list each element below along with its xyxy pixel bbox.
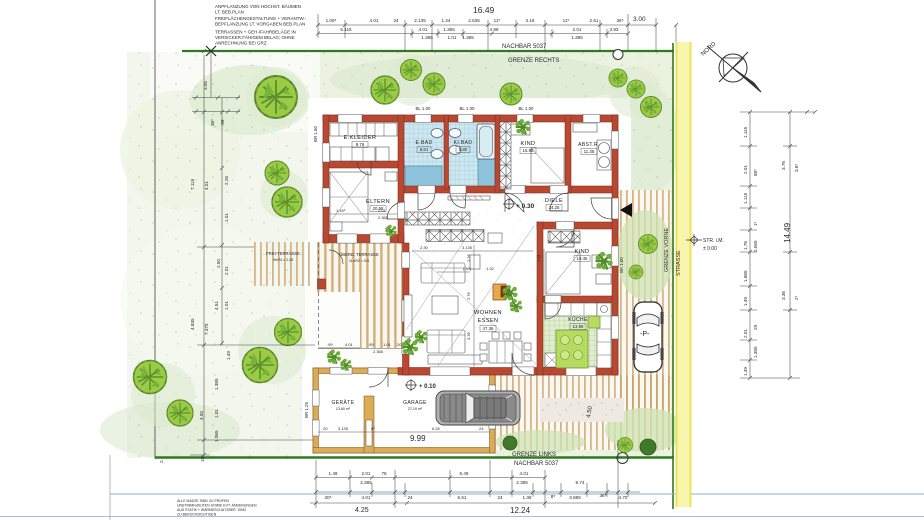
svg-text:3.135: 3.135 — [462, 245, 473, 250]
svg-text:9.99: 9.99 — [410, 434, 426, 443]
svg-text:13.95: 13.95 — [573, 324, 585, 329]
svg-text:2.76: 2.76 — [466, 291, 471, 300]
svg-text:1.32: 1.32 — [486, 266, 495, 271]
svg-text:3.93: 3.93 — [610, 27, 619, 32]
svg-text:2.385: 2.385 — [360, 480, 372, 485]
svg-text:3.135: 3.135 — [338, 426, 349, 431]
svg-text:9.74: 9.74 — [576, 480, 585, 485]
svg-text:19.45: 19.45 — [577, 256, 589, 261]
svg-text:VERSICKER.FÄHIGEM BELAG; OHNE: VERSICKER.FÄHIGEM BELAG; OHNE — [215, 34, 295, 40]
svg-text:36⁵: 36⁵ — [599, 493, 606, 498]
svg-text:1.01: 1.01 — [383, 342, 392, 347]
svg-text:ANRECHNUNG BEI GRZ.: ANRECHNUNG BEI GRZ. — [215, 41, 268, 46]
svg-text:.20: .20 — [396, 342, 402, 347]
svg-text:8.81: 8.81 — [420, 147, 429, 152]
svg-text:7.375: 7.375 — [204, 323, 209, 335]
svg-text:4.51: 4.51 — [214, 301, 219, 310]
svg-text:GARAGE: GARAGE — [403, 400, 427, 406]
svg-text:GERÄTE: GERÄTE — [332, 399, 355, 406]
svg-text:1.24: 1.24 — [442, 18, 451, 23]
svg-text:ELTERN: ELTERN — [366, 199, 390, 205]
svg-text:NACHBAR 5037: NACHBAR 5037 — [514, 461, 559, 467]
svg-text:11m²/2 = 5.5: 11m²/2 = 5.5 — [349, 259, 369, 263]
svg-text:1.385: 1.385 — [753, 346, 758, 358]
svg-text:7.115: 7.115 — [190, 178, 195, 190]
svg-text:8.80: 8.80 — [459, 147, 468, 152]
svg-text:30⁵: 30⁵ — [324, 495, 331, 500]
svg-text:2.365: 2.365 — [378, 215, 389, 220]
svg-text:-P-: -P- — [640, 331, 650, 338]
svg-text:BR 1.50: BR 1.50 — [313, 126, 318, 142]
svg-text:KIND: KIND — [521, 141, 536, 147]
svg-text:4.50: 4.50 — [199, 411, 204, 420]
svg-text:.99: .99 — [220, 119, 225, 126]
svg-text:1.885: 1.885 — [743, 270, 748, 282]
svg-text:11.35: 11.35 — [584, 149, 595, 154]
svg-text:1.385: 1.385 — [571, 35, 583, 40]
svg-text:1.365: 1.365 — [443, 27, 455, 32]
svg-text:BEPFLANZUNG LT. VORGABEN BEB.P: BEPFLANZUNG LT. VORGABEN BEB.PLAN — [215, 22, 305, 27]
svg-text:2.50: 2.50 — [216, 259, 221, 268]
svg-text:6.49: 6.49 — [460, 471, 469, 476]
svg-text:9m²/4 = 2.25: 9m²/4 = 2.25 — [273, 258, 293, 262]
svg-text:24: 24 — [393, 18, 399, 23]
svg-text:3.05: 3.05 — [203, 81, 208, 90]
svg-text:3.16: 3.16 — [526, 18, 535, 23]
svg-text:2.565: 2.565 — [753, 240, 758, 252]
svg-text:4.01: 4.01 — [204, 181, 209, 190]
svg-text:18⁵: 18⁵ — [200, 455, 205, 462]
svg-text:88⁵: 88⁵ — [753, 169, 758, 176]
svg-text:FREIFLÄCHENGESTALTUNG + VERANT: FREIFLÄCHENGESTALTUNG + VERANTW.- — [215, 15, 307, 21]
svg-text:1⁵: 1⁵ — [753, 221, 758, 226]
svg-text:1.49: 1.49 — [743, 367, 748, 376]
svg-text:BL 1.00: BL 1.00 — [460, 106, 476, 111]
svg-text:NACHBAR 5037: NACHBAR 5037 — [502, 44, 547, 50]
svg-text:24: 24 — [497, 495, 503, 500]
svg-text:4.01: 4.01 — [362, 495, 371, 500]
svg-text:2.01: 2.01 — [743, 329, 748, 338]
svg-text:2.01: 2.01 — [362, 471, 371, 476]
svg-text:1.385: 1.385 — [421, 35, 433, 40]
svg-text:ALLE MASZE SIND ZU PRÜFEN: ALLE MASZE SIND ZU PRÜFEN — [177, 499, 229, 503]
svg-text:11⁵: 11⁵ — [494, 18, 501, 23]
svg-text:.99: .99 — [327, 342, 333, 347]
svg-text:4.01: 4.01 — [370, 18, 379, 23]
svg-text:1.01: 1.01 — [214, 409, 219, 418]
svg-text:ÜBERD. TERRASSE: ÜBERD. TERRASSE — [339, 252, 379, 257]
svg-text:1.385: 1.385 — [462, 35, 474, 40]
svg-text:3.76: 3.76 — [781, 161, 786, 170]
svg-text:2⁴: 2⁴ — [794, 295, 799, 300]
svg-text:BL 1.00: BL 1.00 — [416, 106, 432, 111]
svg-text:GRENZE LINKS: GRENZE LINKS — [512, 452, 556, 458]
svg-text:LT. BEB.PLAN: LT. BEB.PLAN — [215, 10, 244, 15]
svg-text:ANPFLANZUNG VON HOCHST. BÄUMEN: ANPFLANZUNG VON HOCHST. BÄUMEN — [215, 3, 301, 9]
svg-text:4.25: 4.25 — [355, 507, 369, 514]
svg-text:4.70: 4.70 — [619, 495, 628, 500]
svg-text:KIND: KIND — [575, 249, 590, 255]
svg-text:2.26: 2.26 — [224, 176, 229, 185]
svg-text:1.01: 1.01 — [536, 253, 541, 262]
svg-text:20.58: 20.58 — [373, 206, 385, 211]
svg-text:2.01: 2.01 — [224, 266, 229, 275]
svg-text:E.KLEIDER: E.KLEIDER — [344, 135, 377, 141]
svg-text:29: 29 — [753, 324, 758, 330]
svg-text:± 0.00: ± 0.00 — [703, 246, 717, 252]
svg-text:11⁵: 11⁵ — [563, 18, 570, 23]
svg-text:24.25: 24.25 — [549, 205, 561, 210]
svg-text:16.49: 16.49 — [473, 5, 495, 15]
svg-text:2.30: 2.30 — [420, 245, 429, 250]
svg-text:2.: 2. — [159, 459, 164, 463]
svg-text:1.76: 1.76 — [743, 241, 748, 250]
svg-text:ZU BERÜCKSICHTIGEN: ZU BERÜCKSICHTIGEN — [177, 513, 217, 517]
svg-text:1.49⁵: 1.49⁵ — [336, 208, 346, 213]
svg-text:47.36: 47.36 — [483, 326, 495, 331]
svg-text:5.115: 5.115 — [340, 27, 352, 32]
svg-text:1.065: 1.065 — [214, 430, 219, 442]
svg-text:4.01: 4.01 — [520, 471, 529, 476]
svg-text:2.635: 2.635 — [468, 18, 480, 23]
svg-text:1.115: 1.115 — [743, 192, 748, 204]
svg-text:BR 1.25: BR 1.25 — [304, 402, 309, 418]
svg-text:6.26: 6.26 — [432, 426, 441, 431]
svg-text:ABST.R.: ABST.R. — [578, 142, 600, 148]
svg-text:3.6⁵: 3.6⁵ — [794, 164, 799, 172]
svg-text:.24: .24 — [478, 426, 484, 431]
svg-text:2.01: 2.01 — [743, 165, 748, 174]
svg-text:BL 1.00: BL 1.00 — [519, 106, 535, 111]
svg-text:DIELE: DIELE — [545, 198, 563, 204]
svg-text:2.51: 2.51 — [590, 18, 599, 23]
svg-text:3.885: 3.885 — [569, 495, 581, 500]
svg-text:BK 1.00: BK 1.00 — [619, 257, 624, 273]
svg-text:1.06⁵: 1.06⁵ — [326, 18, 337, 23]
svg-text:2.385: 2.385 — [516, 480, 528, 485]
svg-text:3.00: 3.00 — [633, 16, 646, 23]
svg-text:2.135: 2.135 — [414, 18, 426, 23]
svg-text:(.50): (.50) — [463, 266, 472, 271]
svg-text:8⁵: 8⁵ — [371, 426, 375, 431]
svg-text:1.385: 1.385 — [214, 378, 219, 390]
svg-text:78: 78 — [381, 471, 387, 476]
svg-text:ESSEN: ESSEN — [478, 318, 499, 324]
svg-text:+ 0.10: + 0.10 — [419, 384, 437, 390]
svg-text:GRENZE RECHTS: GRENZE RECHTS — [508, 58, 559, 64]
svg-text:AUS STATIK + WÄRMESCHUTZBER. S: AUS STATIK + WÄRMESCHUTZBER. SIND — [177, 508, 246, 512]
svg-text:4.99: 4.99 — [490, 27, 499, 32]
svg-text:GRENZE VORNE: GRENZE VORNE — [664, 228, 670, 272]
svg-text:24: 24 — [407, 495, 413, 500]
svg-text:4.01: 4.01 — [419, 27, 428, 32]
svg-text:KI.BAD: KI.BAD — [454, 140, 473, 146]
svg-text:27.19 m²: 27.19 m² — [408, 407, 423, 411]
svg-text:+ 0.30: + 0.30 — [516, 203, 535, 210]
svg-text:36⁵: 36⁵ — [210, 119, 215, 126]
svg-text:14.49: 14.49 — [783, 222, 792, 243]
svg-text:12.24: 12.24 — [510, 506, 531, 515]
svg-text:2.01: 2.01 — [573, 27, 582, 32]
svg-text:1.49: 1.49 — [329, 471, 338, 476]
svg-text:FREI-TERRASSE: FREI-TERRASSE — [266, 251, 300, 256]
svg-text:1.115: 1.115 — [743, 126, 748, 138]
svg-text:TERRASSEN + GEH-/FAHRBELÄGE IN: TERRASSEN + GEH-/FAHRBELÄGE IN — [215, 29, 296, 35]
svg-text:E.BAD: E.BAD — [415, 140, 432, 146]
svg-text:15.95: 15.95 — [523, 148, 535, 153]
svg-text:STRASSE: STRASSE — [676, 250, 682, 276]
svg-text:1.01: 1.01 — [224, 301, 229, 310]
svg-text:1.01: 1.01 — [448, 35, 457, 40]
svg-text:1.36: 1.36 — [523, 495, 532, 500]
svg-text:3.36: 3.36 — [466, 331, 471, 340]
svg-text:.20: .20 — [322, 426, 328, 431]
svg-text:.99: .99 — [368, 342, 374, 347]
svg-text:KÜCHE: KÜCHE — [568, 316, 588, 323]
svg-text:13.60 m²: 13.60 m² — [336, 407, 351, 411]
svg-text:WOHNEN: WOHNEN — [474, 310, 502, 316]
svg-text:4.01: 4.01 — [345, 342, 354, 347]
svg-text:STR. i.M.: STR. i.M. — [703, 238, 724, 244]
svg-text:1.49: 1.49 — [226, 351, 231, 360]
svg-text:UNSTIMMIGKEITEN SOWIE EVT. ÄND: UNSTIMMIGKEITEN SOWIE EVT. ÄNDERUNGEN — [177, 504, 257, 508]
svg-text:1.26: 1.26 — [466, 253, 471, 262]
svg-text:5.51: 5.51 — [458, 495, 467, 500]
svg-text:8.76: 8.76 — [356, 142, 365, 147]
svg-text:4.835: 4.835 — [190, 318, 195, 330]
svg-text:1.49: 1.49 — [743, 297, 748, 306]
svg-text:2.365: 2.365 — [373, 349, 384, 354]
svg-text:1.01: 1.01 — [224, 213, 229, 222]
svg-text:3.36: 3.36 — [781, 291, 786, 300]
svg-text:8⁵: 8⁵ — [551, 494, 556, 499]
svg-text:36⁵: 36⁵ — [616, 18, 623, 23]
